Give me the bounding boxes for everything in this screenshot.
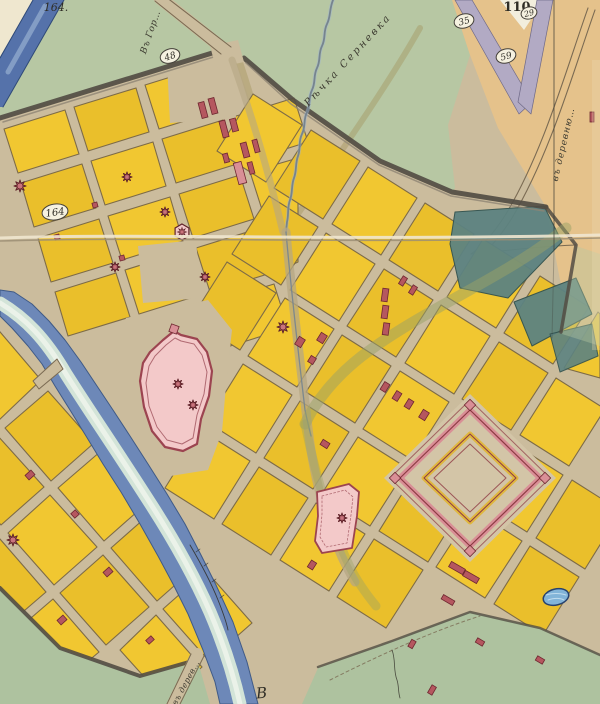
building [381, 288, 389, 302]
label-letter-v-text: В [254, 684, 268, 703]
label-letter-v: В [254, 684, 268, 703]
label-164-top-text: 164. [44, 1, 69, 14]
church-star-icon [7, 534, 19, 546]
church-star-icon [277, 321, 289, 333]
church-star-icon [122, 172, 132, 182]
church-plaza [138, 240, 201, 303]
church-star-icon [200, 272, 210, 282]
building [382, 323, 390, 336]
church-star-icon [110, 262, 120, 272]
church-star-icon [160, 207, 170, 217]
sheet-edge-strip [592, 60, 600, 350]
building [92, 202, 98, 208]
church-star-icon [14, 180, 26, 192]
church-star-icon [173, 379, 183, 389]
building [381, 305, 389, 319]
historical-town-plan: 164.48164351102959ВВъ Гор…Рѣчка Серневка… [0, 0, 600, 704]
label-164-top: 164. [44, 1, 69, 14]
church-star-icon [188, 400, 198, 410]
map-canvas: 164.48164351102959ВВъ Гор…Рѣчка Серневка… [0, 0, 600, 704]
church-star-icon [337, 513, 347, 523]
building [119, 255, 125, 261]
